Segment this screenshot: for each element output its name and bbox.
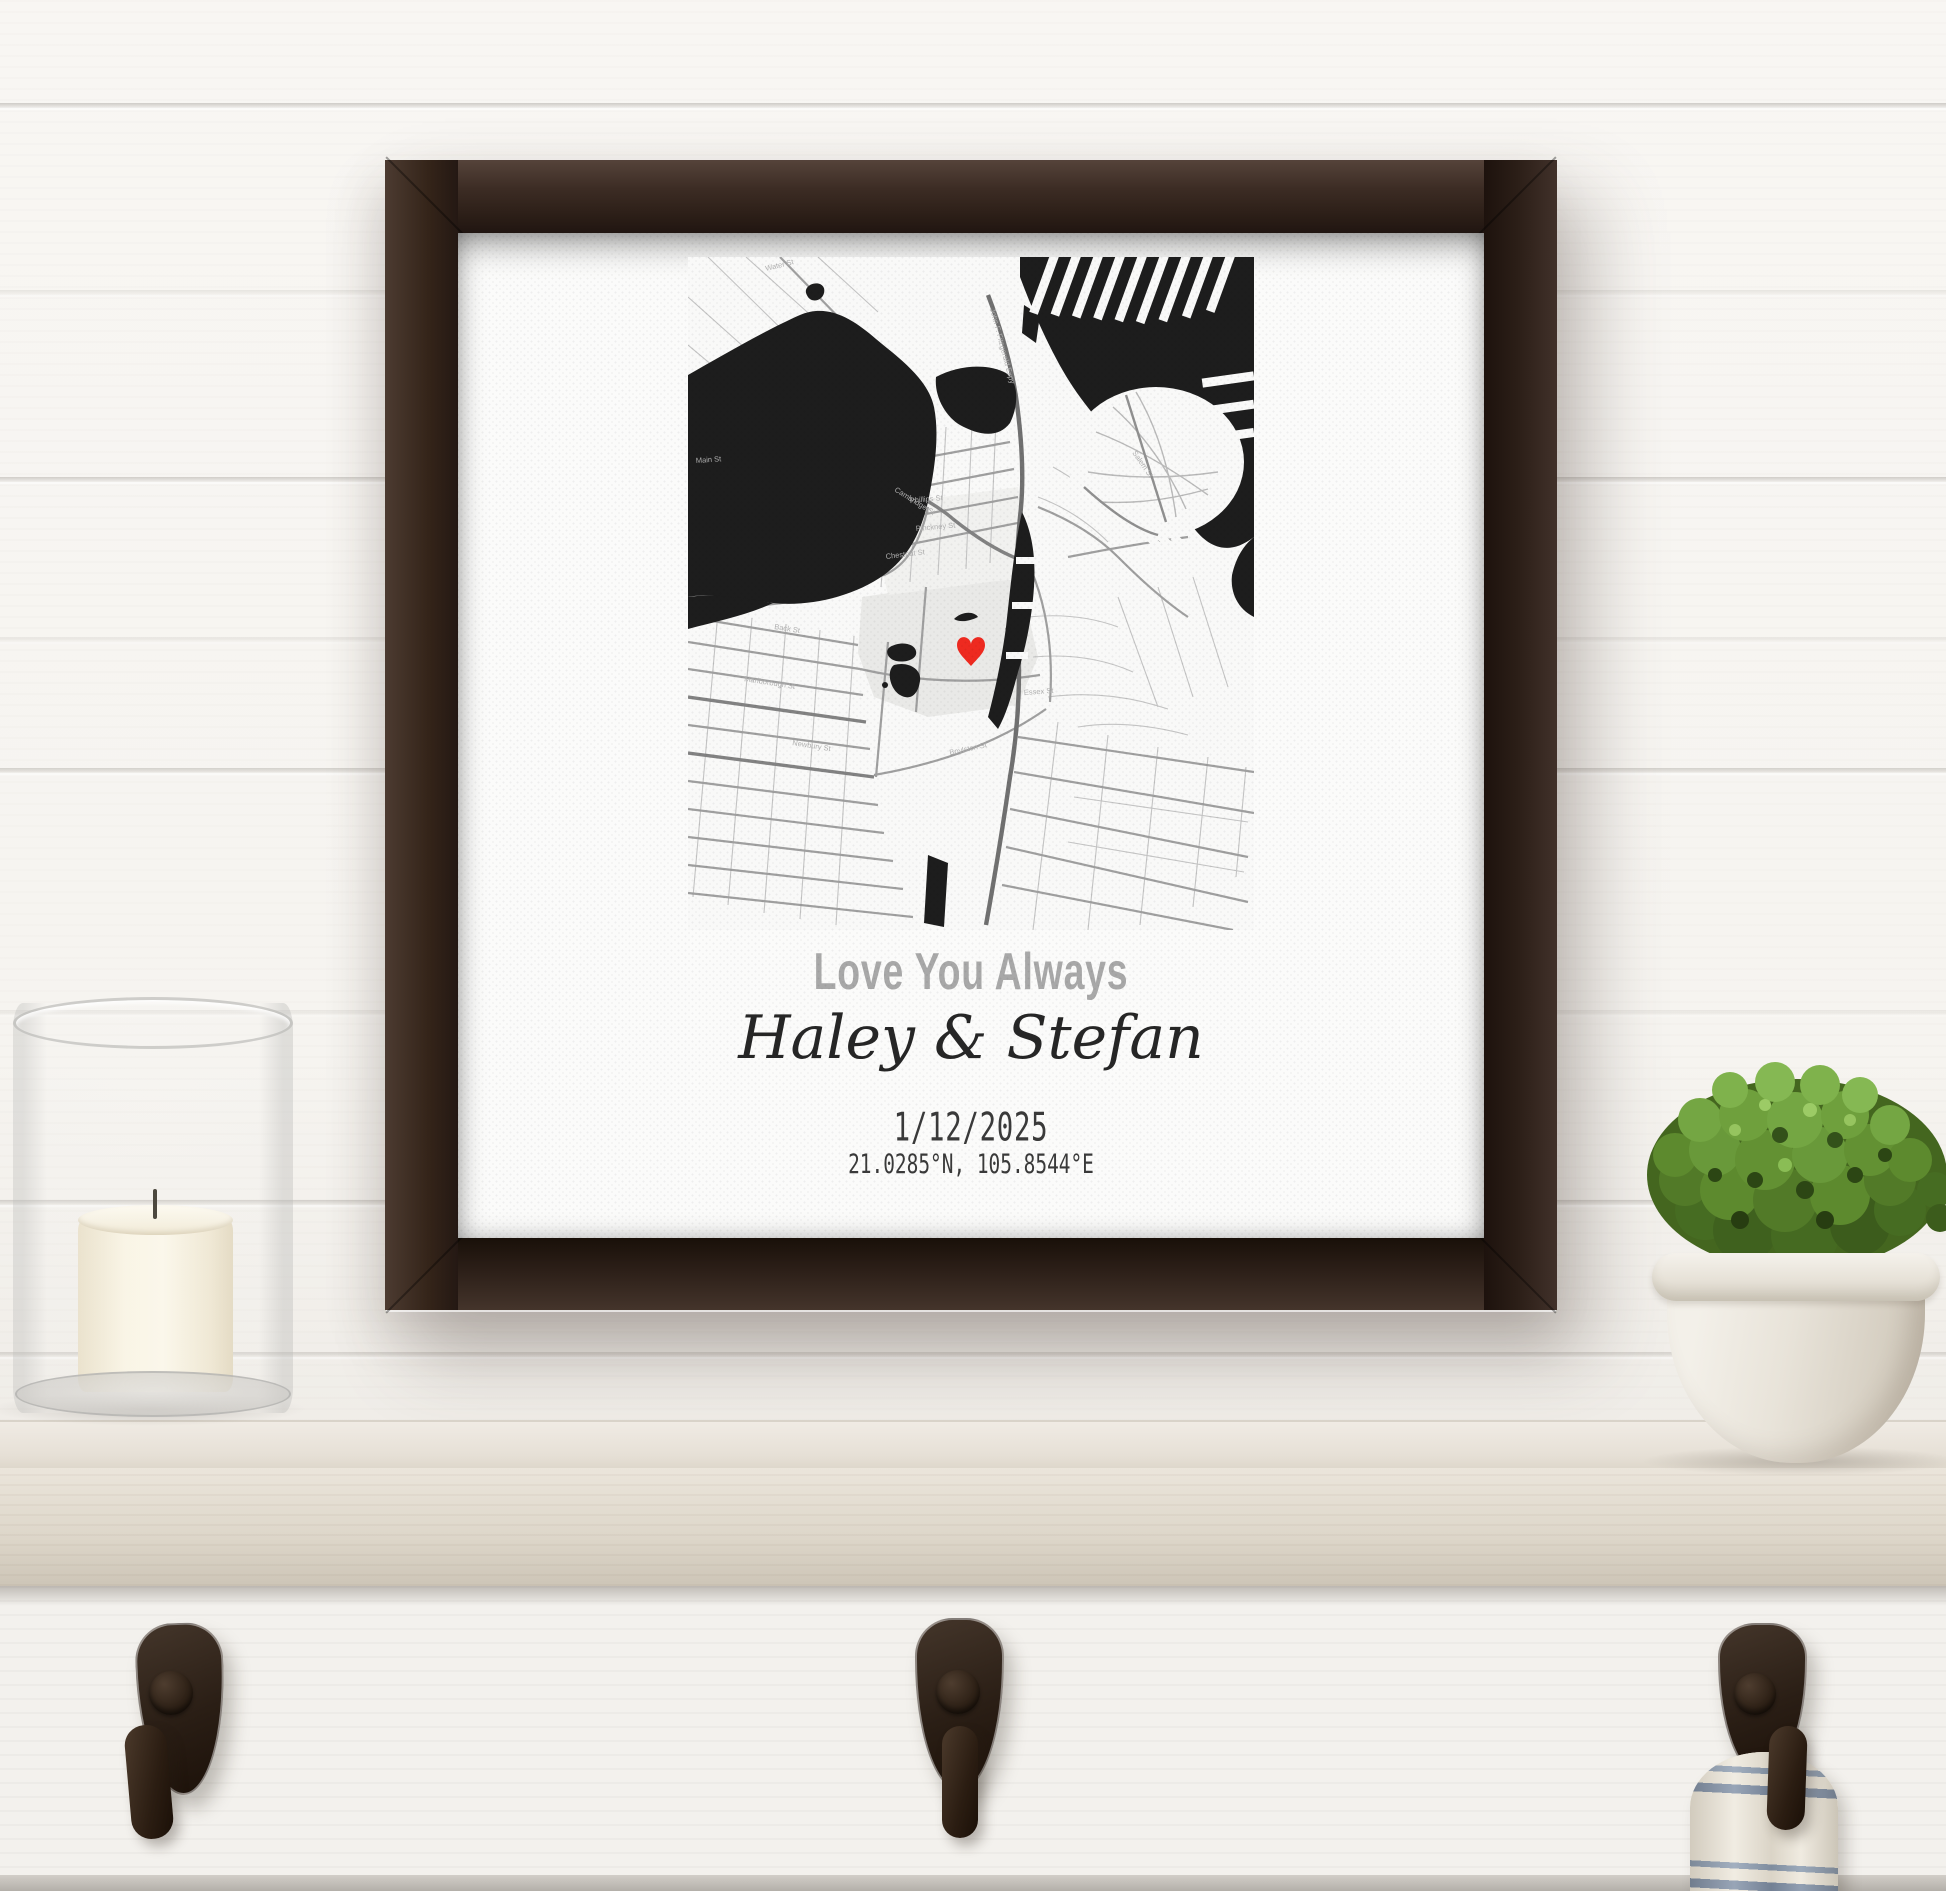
frame-bottom-rail (385, 1238, 1557, 1310)
hook-screw-boss (149, 1671, 193, 1715)
shelf-underside-shadow (0, 1586, 1946, 1606)
shelf-wood-grain (0, 1468, 1946, 1586)
wall-hook-left (137, 1623, 227, 1843)
candle-wick (153, 1189, 157, 1219)
shelf-front-edge (0, 1468, 1946, 1586)
plant-pot (1652, 1253, 1940, 1465)
plant-foliage-svg (1645, 1060, 1946, 1272)
plant-foliage (1645, 1060, 1946, 1272)
date-text: 1/12/2025 (602, 1105, 1341, 1150)
city-map-svg: Water St Main St John F. Fitzgerald Expy… (688, 257, 1254, 930)
couple-names-text: Haley & Stefan (458, 1003, 1484, 1073)
canvas-print: Water St Main St John F. Fitzgerald Expy… (458, 233, 1484, 1238)
hook-arm (1766, 1725, 1808, 1830)
wall-plank-groove (0, 103, 1946, 111)
glass-base (15, 1371, 291, 1417)
north-end-area (1068, 387, 1244, 537)
plant-pot-body (1667, 1293, 1925, 1463)
hook-screw-boss (1734, 1673, 1776, 1715)
wall-hook-middle (915, 1618, 1005, 1838)
glass-rim (13, 997, 293, 1049)
frame-left-rail (385, 160, 458, 1310)
city-map: Water St Main St John F. Fitzgerald Expy… (688, 257, 1254, 930)
frame-top-rail (385, 160, 1557, 233)
hook-screw-boss (936, 1670, 980, 1714)
wall-scene: Water St Main St John F. Fitzgerald Expy… (0, 0, 1946, 1891)
bottom-edge-strip (0, 1875, 1946, 1891)
striped-towel (1690, 1752, 1838, 1891)
plant-pot-rim (1652, 1253, 1940, 1301)
frame-right-rail (1484, 160, 1557, 1310)
picture-frame: Water St Main St John F. Fitzgerald Expy… (385, 160, 1557, 1310)
coordinates-text: 21.0285°N, 105.8544°E (602, 1149, 1341, 1180)
hook-arm (942, 1726, 978, 1838)
towel-fold-shading (1690, 1752, 1838, 1891)
headline-text: Love You Always (571, 943, 1371, 1002)
map-label: Main St (696, 454, 723, 465)
